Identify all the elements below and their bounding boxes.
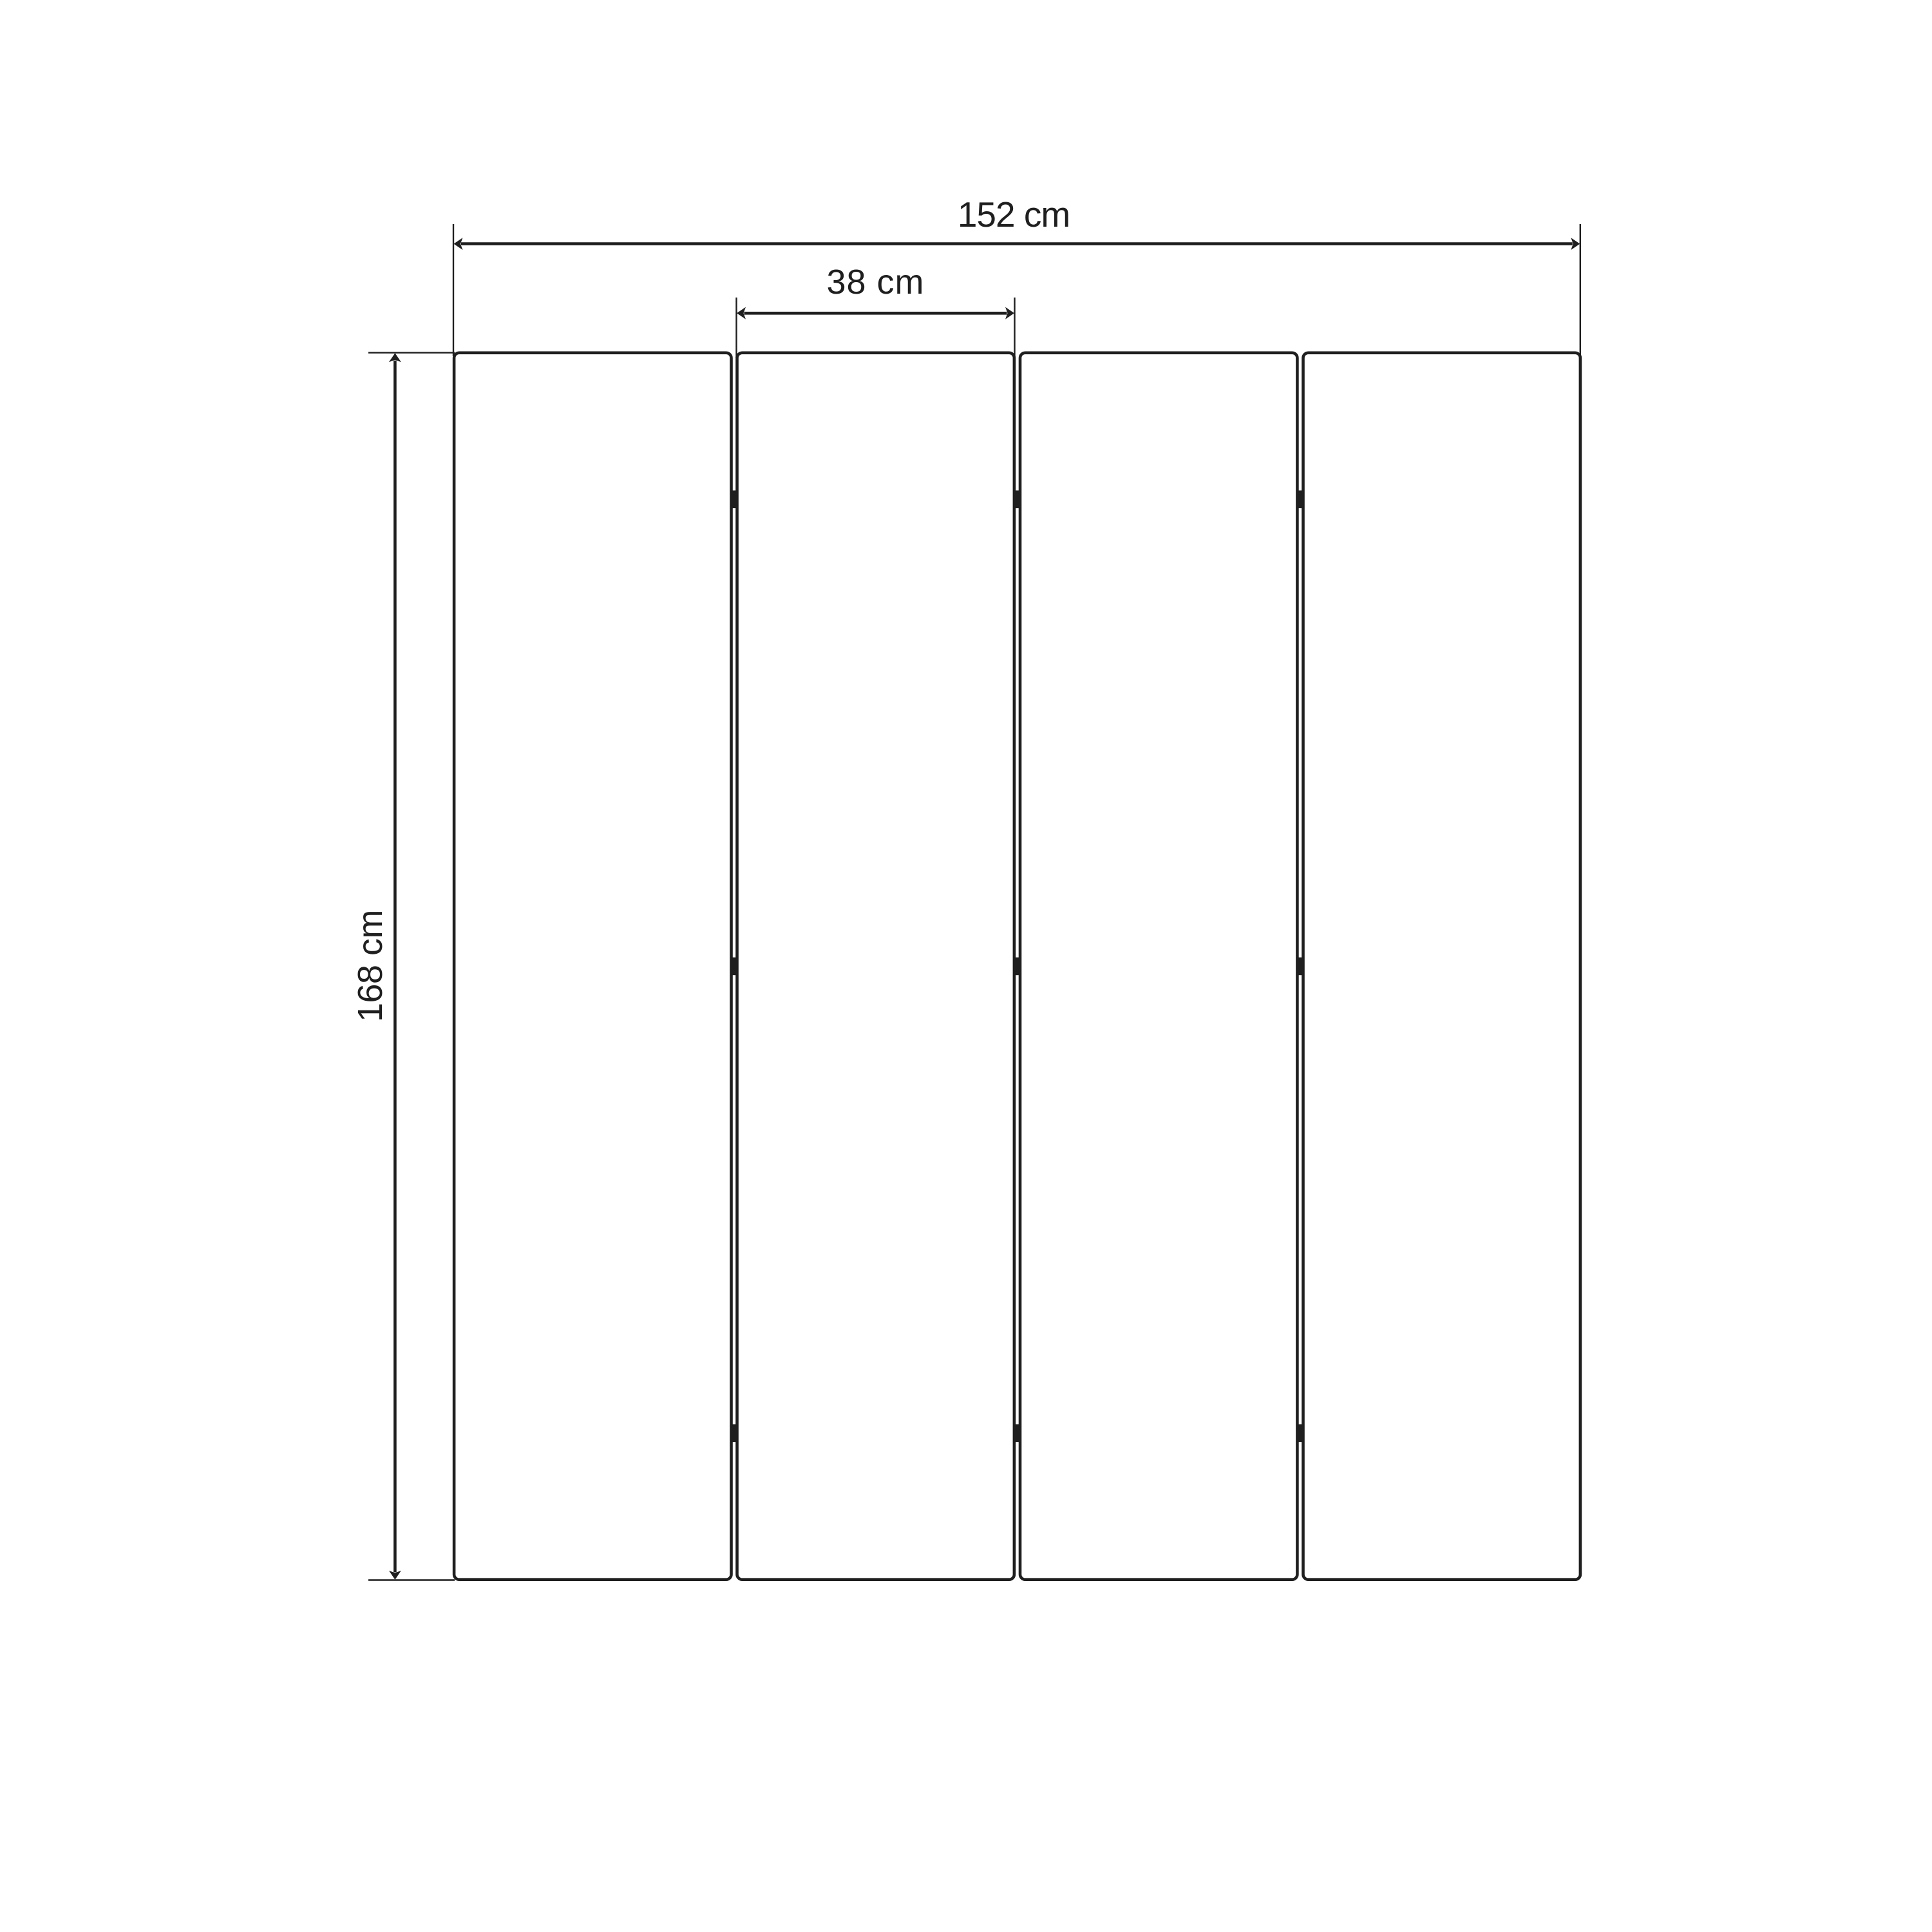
svg-text:152 cm: 152 cm xyxy=(958,194,1070,234)
svg-text:38 cm: 38 cm xyxy=(826,263,924,301)
svg-text:168 cm: 168 cm xyxy=(351,910,390,1022)
